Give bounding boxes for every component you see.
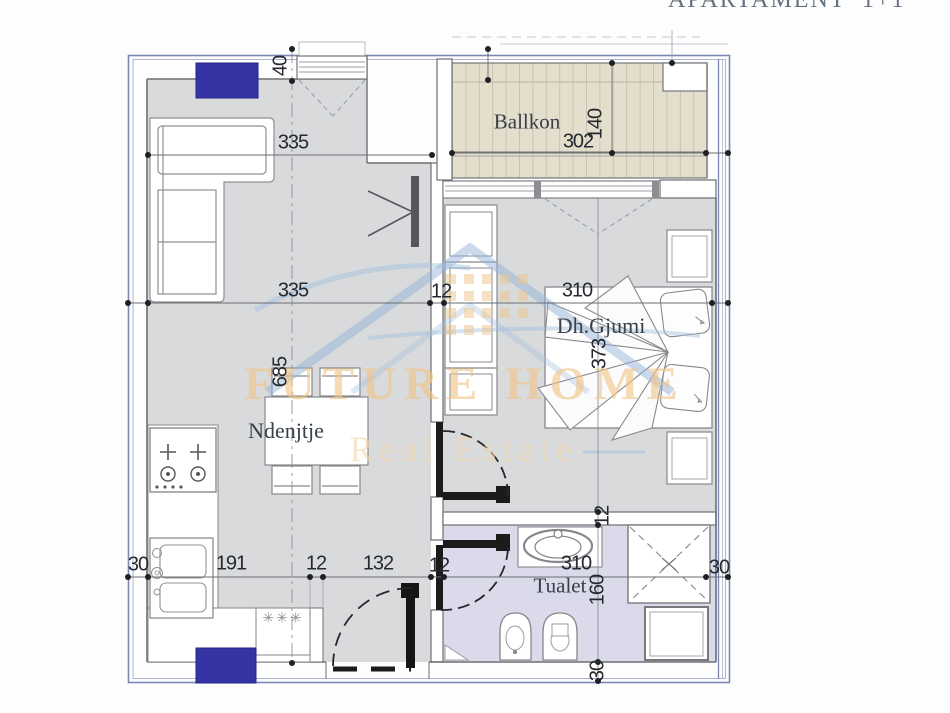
shower	[628, 525, 710, 603]
nightstand-bottom	[667, 432, 712, 484]
appliance-marks: ✳✳✳	[262, 610, 303, 627]
room-label-balcony: Ballkon	[494, 110, 561, 135]
dim-140: 140	[585, 109, 608, 139]
room-label-bedroom: Dh.Gjumi	[557, 313, 646, 339]
dim-12-wall: 12	[431, 281, 451, 304]
washing-machine	[645, 607, 708, 660]
dim-12-hall: 12	[429, 555, 449, 578]
balcony-floor	[452, 37, 728, 178]
nightstand-top	[667, 230, 712, 282]
floor-plan-page: FUTURE HOME Real Estate APARTAMENT 1+1 B…	[0, 0, 950, 713]
dim-335-upper: 335	[278, 132, 308, 155]
room-label-living: Ndenjtje	[248, 418, 324, 444]
dim-30-left: 30	[128, 554, 148, 577]
pillow	[659, 288, 710, 337]
bidet	[500, 613, 531, 660]
floor-plan-drawing	[0, 0, 950, 713]
dim-373: 373	[589, 339, 612, 369]
plan-title: APARTAMENT 1+1	[668, 0, 906, 14]
kitchen-sink	[150, 538, 213, 618]
dim-160: 160	[587, 575, 610, 605]
structural-column-bottom	[196, 648, 256, 683]
balcony-window	[443, 181, 660, 198]
dim-12-counter: 12	[306, 553, 326, 576]
dim-30-bottom: 30	[587, 661, 610, 681]
dim-40: 40	[270, 56, 293, 76]
dim-12-toilet-wall: 12	[592, 506, 615, 526]
window-sill	[299, 42, 365, 56]
dim-132: 132	[363, 553, 393, 576]
dim-30-right: 30	[709, 557, 729, 580]
toilet-bowl	[543, 613, 577, 660]
dim-685: 685	[270, 357, 293, 387]
dim-335: 335	[278, 280, 308, 303]
dim-310-bedroom: 310	[562, 280, 592, 303]
room-label-toilet: Tualet	[534, 574, 587, 599]
chair	[320, 466, 360, 494]
structural-column-top	[196, 63, 258, 98]
dim-191: 191	[216, 553, 246, 576]
stove	[150, 428, 216, 492]
dim-310-toilet: 310	[561, 553, 591, 576]
